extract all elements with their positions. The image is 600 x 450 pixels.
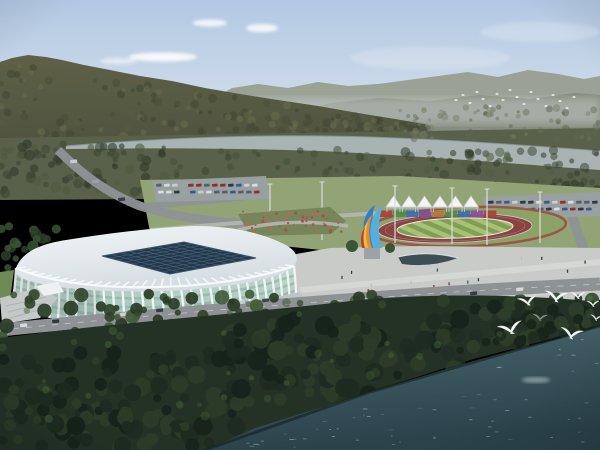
scene-canvas: [0, 0, 600, 450]
architectural-rendering: [0, 0, 600, 450]
vignette-overlay: [0, 0, 600, 450]
